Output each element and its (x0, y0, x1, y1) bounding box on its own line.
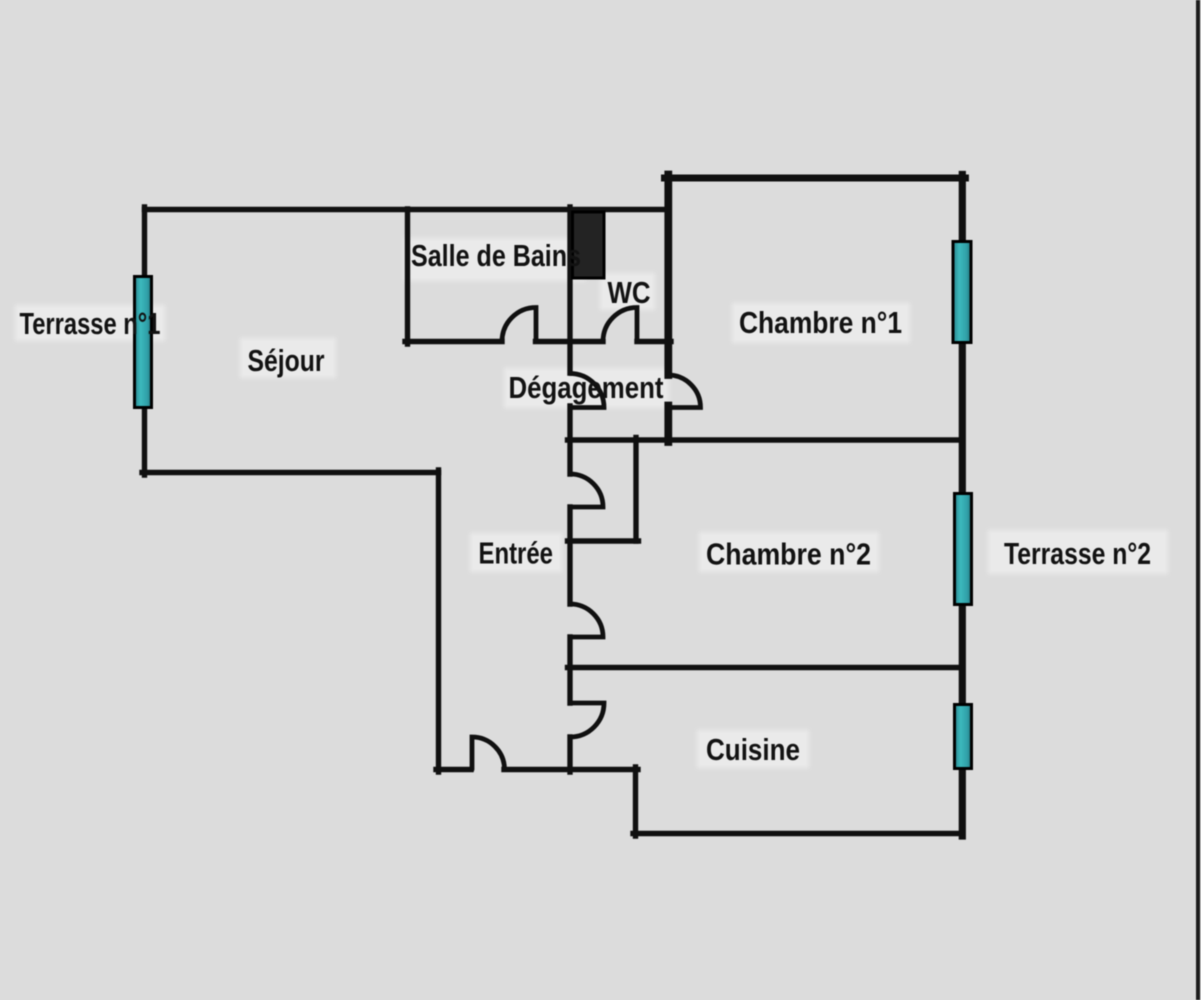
svg-text:Chambre n°1: Chambre n°1 (739, 305, 902, 340)
svg-text:WC: WC (608, 275, 651, 310)
svg-text:Dégagement: Dégagement (509, 370, 664, 405)
svg-text:Cuisine: Cuisine (706, 732, 800, 767)
svg-text:Entrée: Entrée (479, 536, 554, 571)
svg-text:Chambre n°2: Chambre n°2 (706, 537, 871, 572)
svg-text:Salle de Bains: Salle de Bains (411, 238, 581, 273)
svg-text:Séjour: Séjour (248, 343, 325, 378)
svg-text:Terrasse n°2: Terrasse n°2 (1004, 536, 1151, 571)
svg-text:Terrasse n°1: Terrasse n°1 (20, 306, 161, 341)
